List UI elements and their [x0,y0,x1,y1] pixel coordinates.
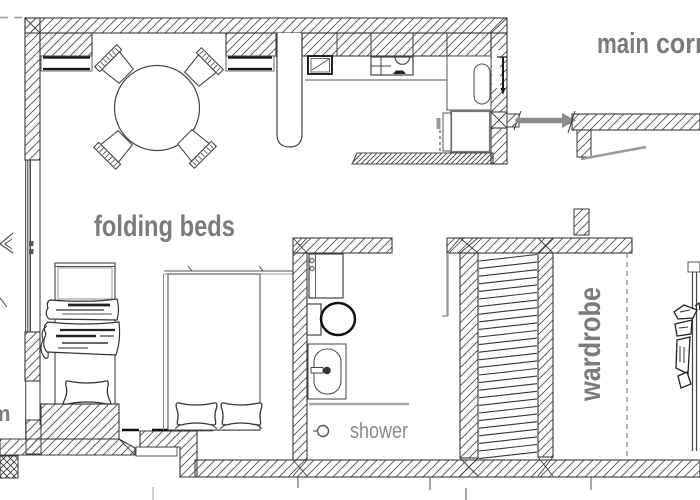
svg-text:corridor: corridor [656,28,700,60]
svg-text:wardrobe: wardrobe [574,287,607,402]
svg-text:m: m [0,401,11,426]
svg-text:main: main [597,28,649,60]
svg-text:shower: shower [350,418,408,443]
svg-text:folding beds: folding beds [94,210,235,243]
